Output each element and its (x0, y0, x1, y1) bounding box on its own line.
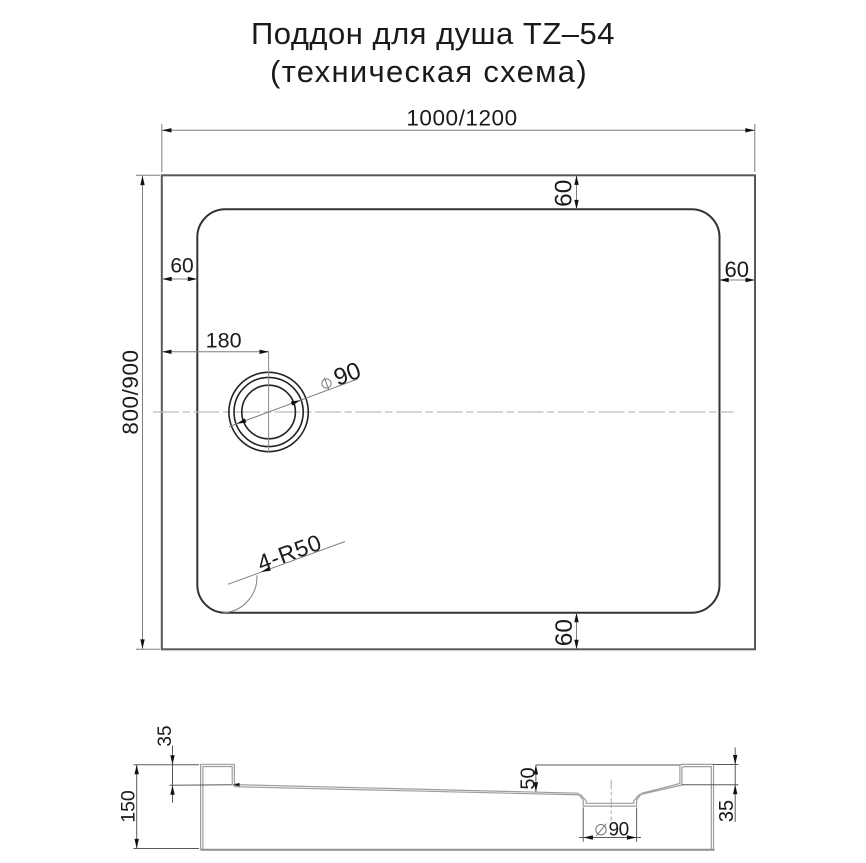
svg-text:(техническая схема): (техническая схема) (270, 54, 588, 89)
svg-text:60: 60 (551, 619, 578, 646)
svg-text:150: 150 (118, 790, 140, 823)
svg-text:35: 35 (155, 725, 176, 746)
svg-text:90: 90 (609, 820, 629, 841)
svg-text:800/900: 800/900 (118, 349, 143, 434)
svg-text:180: 180 (206, 329, 242, 353)
svg-text:35: 35 (716, 800, 738, 822)
svg-text:Поддон для душа TZ–54: Поддон для душа TZ–54 (251, 16, 615, 51)
svg-text:60: 60 (551, 180, 578, 207)
svg-text:1000/1200: 1000/1200 (406, 106, 517, 131)
svg-text:60: 60 (170, 255, 193, 278)
svg-text:50: 50 (518, 767, 540, 789)
svg-text:60: 60 (725, 257, 749, 282)
